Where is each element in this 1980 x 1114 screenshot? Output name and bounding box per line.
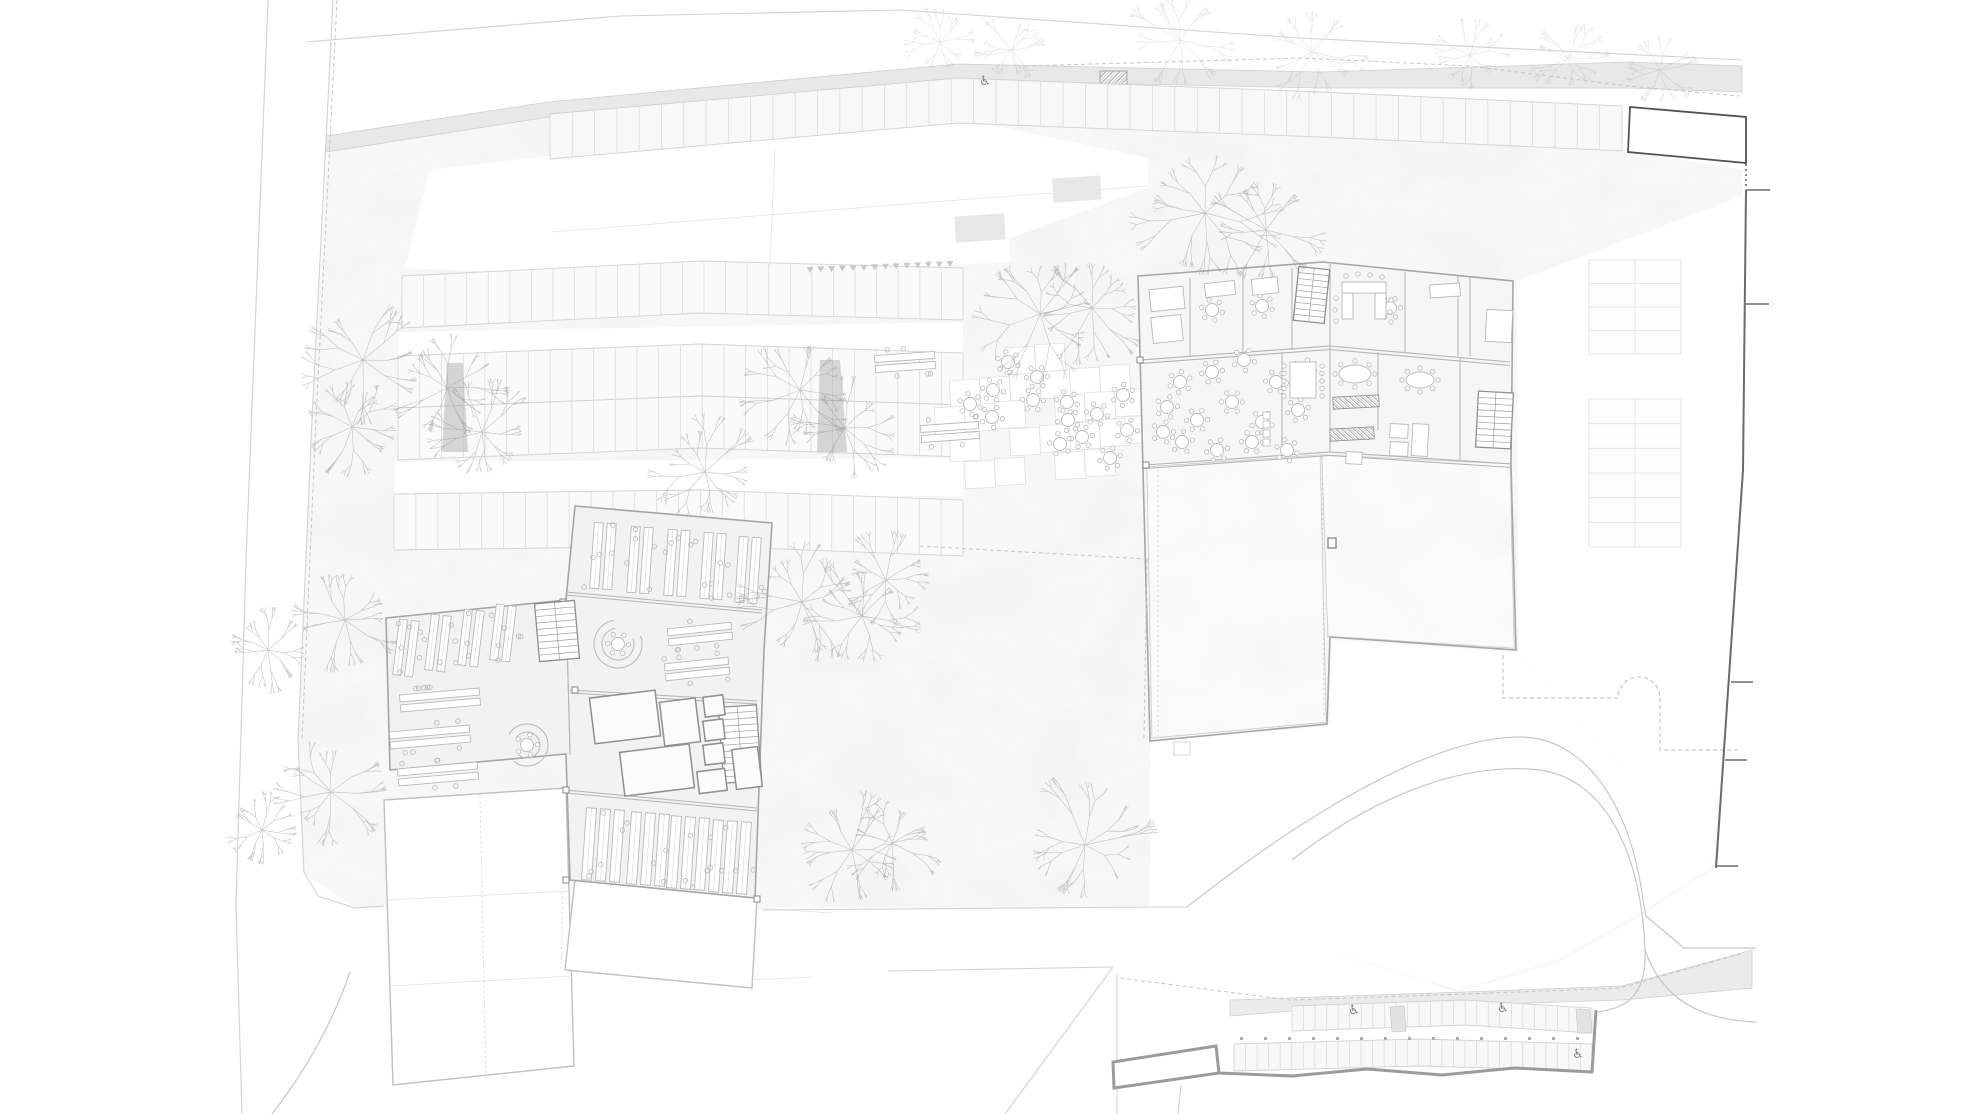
chair (1269, 370, 1273, 374)
chair (1225, 409, 1229, 413)
chair (1036, 407, 1040, 411)
chair (1025, 407, 1029, 411)
chair (1418, 390, 1422, 394)
post-dot (1504, 1037, 1507, 1040)
post-dot (1336, 1037, 1339, 1040)
table-top (1157, 426, 1170, 439)
chair (1199, 371, 1203, 375)
chair (1400, 378, 1404, 382)
chair (1115, 463, 1119, 467)
chair (1234, 350, 1238, 354)
wall-marker (563, 877, 569, 883)
chair (1168, 395, 1172, 399)
kitchen-box (1390, 424, 1409, 439)
chair (1075, 402, 1079, 406)
chair (1334, 296, 1338, 300)
fixture (1263, 421, 1270, 428)
animal-pen (589, 690, 660, 744)
chair (1127, 438, 1131, 442)
chair (1179, 369, 1183, 373)
chair (1205, 417, 1209, 421)
animal-pen (659, 698, 700, 746)
chair (1090, 433, 1094, 437)
fixture (1263, 412, 1270, 419)
table-top (1246, 436, 1259, 449)
table-top (1211, 444, 1224, 457)
side-table (1204, 280, 1235, 297)
chair (1084, 410, 1088, 414)
animal-pen (620, 744, 695, 796)
chair (958, 398, 962, 402)
animal-pen (703, 695, 725, 717)
chair (978, 405, 982, 409)
table-top (1027, 394, 1040, 407)
chair (1250, 300, 1254, 304)
post-dot (1288, 1037, 1291, 1040)
chair (1245, 431, 1249, 435)
oval-table (1333, 359, 1377, 389)
chair (1135, 429, 1139, 433)
chair (1225, 391, 1229, 395)
chair (1072, 392, 1076, 396)
chair (611, 632, 615, 636)
chair (1152, 424, 1156, 428)
chair (1001, 390, 1005, 394)
chair (1055, 420, 1059, 424)
table-top (1191, 414, 1204, 427)
chair (1064, 428, 1068, 432)
conference-top (1290, 362, 1316, 398)
table-top (987, 384, 1000, 397)
hall-wash (1147, 455, 1326, 738)
chair (1225, 446, 1229, 450)
chair (621, 651, 625, 655)
chair (1024, 375, 1028, 379)
chair (984, 396, 988, 400)
chair (1026, 388, 1030, 392)
chair (1170, 373, 1174, 377)
chair (1047, 441, 1051, 445)
post-dot (1456, 1037, 1459, 1040)
chair (1431, 386, 1435, 390)
chair (1250, 423, 1254, 427)
chair (1041, 384, 1045, 388)
chair (1320, 394, 1324, 398)
post-dot (1432, 1037, 1435, 1040)
chair (1105, 466, 1109, 470)
chair (1120, 403, 1124, 407)
chair (1235, 409, 1239, 413)
chair (1112, 387, 1116, 391)
chair (1389, 298, 1393, 302)
chair (1282, 386, 1286, 390)
chair (1268, 297, 1272, 301)
chair (995, 405, 999, 409)
chair (1173, 447, 1177, 451)
table-top (986, 411, 999, 424)
chair (1067, 437, 1071, 441)
oval-top (1406, 372, 1434, 388)
chair (1216, 378, 1220, 382)
chair (1367, 363, 1371, 367)
chair (1076, 445, 1080, 449)
chair (1100, 448, 1104, 452)
chair (1306, 405, 1310, 409)
chair (610, 651, 614, 655)
kitchen-box (1411, 424, 1429, 457)
chair (1190, 427, 1194, 431)
chair (1073, 427, 1077, 431)
chair (1287, 458, 1291, 462)
chair (622, 633, 626, 637)
chair (1037, 389, 1041, 393)
chair (1220, 368, 1224, 372)
table-top (1076, 431, 1089, 444)
chair (1263, 379, 1267, 383)
chair (1252, 360, 1256, 364)
chair (1405, 386, 1409, 390)
chair (1282, 364, 1286, 368)
chair (516, 737, 520, 741)
table-top (1061, 396, 1074, 409)
post-dot (1312, 1037, 1315, 1040)
outside-pad (1174, 742, 1190, 755)
table-top (1206, 304, 1219, 317)
oval-table (1400, 366, 1440, 394)
chair (1098, 422, 1102, 426)
table-segment (1342, 293, 1353, 319)
chair (1030, 384, 1034, 388)
chair (1353, 359, 1357, 363)
table-top (1174, 376, 1187, 389)
animal-pen (703, 743, 725, 765)
sofa (1485, 309, 1513, 342)
chair (1189, 409, 1193, 413)
chair (1181, 429, 1185, 433)
chair (1252, 311, 1256, 315)
barn-outline (384, 788, 574, 1085)
post-dot (1552, 1037, 1555, 1040)
grid-terrace (1589, 399, 1681, 547)
chair (1295, 451, 1299, 455)
chair (1204, 450, 1208, 454)
barn-building (384, 788, 574, 1085)
chair (528, 753, 532, 757)
chair (1061, 409, 1065, 413)
chair (1203, 315, 1207, 319)
fixture (1263, 439, 1270, 446)
chair (1116, 433, 1120, 437)
chair (1270, 307, 1274, 311)
chair (1232, 363, 1236, 367)
chair (1084, 425, 1088, 429)
chair (980, 386, 984, 390)
chair (996, 356, 1000, 360)
sofa (1151, 315, 1184, 344)
chair (1207, 298, 1211, 302)
terrace-tile (1009, 427, 1040, 456)
chair (1356, 272, 1360, 276)
chair (1152, 436, 1156, 440)
chair (1293, 418, 1297, 422)
chair (1214, 360, 1218, 364)
chair (1339, 381, 1343, 385)
chair (1200, 305, 1204, 309)
animal-pen (732, 747, 763, 790)
chair (1039, 365, 1043, 369)
chair (1045, 374, 1049, 378)
grid-terrace (1589, 260, 1681, 354)
table-top (964, 398, 977, 411)
hall-wash (1322, 455, 1514, 648)
chair (1041, 398, 1045, 402)
chair (1117, 421, 1121, 425)
chair (605, 641, 609, 645)
chair (1176, 390, 1180, 394)
chair (1262, 314, 1266, 318)
table-top (1121, 424, 1134, 437)
reserved-stall (1390, 1006, 1406, 1032)
chair (1171, 430, 1175, 434)
sofa (1149, 286, 1185, 311)
chair (1239, 439, 1243, 443)
chair (1268, 388, 1272, 392)
wall-marker (572, 687, 578, 693)
chair (987, 378, 991, 382)
chair (1282, 379, 1286, 383)
chair (1188, 376, 1192, 380)
chair (1091, 402, 1095, 406)
post-dot (1528, 1037, 1531, 1040)
chair (1066, 449, 1070, 453)
post-dot (1360, 1037, 1363, 1040)
chair (1334, 319, 1338, 323)
table-top (1256, 300, 1269, 313)
plaza-pad (1052, 175, 1102, 202)
table-top (1281, 444, 1294, 457)
chair (1398, 306, 1402, 310)
table-top (1206, 366, 1219, 379)
chair (1029, 366, 1033, 370)
table-top (1238, 354, 1251, 367)
chair (1164, 420, 1168, 424)
chair (1000, 417, 1004, 421)
chair (1118, 453, 1122, 457)
kitchen-counter (1333, 395, 1380, 409)
chair (1130, 388, 1134, 392)
chair (1221, 456, 1225, 460)
chair (1170, 435, 1174, 439)
chair (1293, 441, 1297, 445)
chair (1190, 438, 1194, 442)
side-table (1430, 283, 1461, 298)
table-segment (1342, 282, 1386, 293)
chair (1320, 379, 1324, 383)
chair (1111, 446, 1115, 450)
reserved-stall (1576, 1009, 1592, 1033)
chair (1286, 410, 1290, 414)
chair (1004, 349, 1008, 353)
terrace-tile (964, 460, 995, 489)
chair (1220, 310, 1224, 314)
chair (1156, 399, 1160, 403)
south-parking-lower-outline (1234, 1039, 1592, 1071)
side-table (1251, 277, 1279, 296)
wall-marker (563, 787, 569, 793)
chair (1255, 431, 1259, 435)
terrace-tile (1034, 343, 1065, 372)
annex-outline (565, 880, 757, 988)
chair (1380, 275, 1384, 279)
chair (1208, 440, 1212, 444)
chair (535, 742, 539, 746)
chair (1247, 348, 1251, 352)
site-plan-page: ♿♿♿♿ (0, 0, 1980, 1114)
chair (1219, 400, 1223, 404)
kitchen-counter (1330, 427, 1375, 441)
chair (1240, 400, 1244, 404)
chair (1303, 415, 1307, 419)
accessible-parking-icon: ♿ (979, 74, 991, 89)
chair (1203, 362, 1207, 366)
chair (1200, 408, 1204, 412)
south-parking-lower (1234, 1039, 1592, 1071)
chair (1054, 451, 1058, 455)
chair (966, 392, 970, 396)
chair (1086, 443, 1090, 447)
chair (1218, 438, 1222, 442)
chair (1388, 310, 1392, 314)
chair (997, 380, 1001, 384)
chair (1056, 432, 1060, 436)
kitchen-box (1390, 442, 1409, 457)
chair (1129, 418, 1133, 422)
terrace-tile (994, 400, 1025, 429)
fixture (1263, 430, 1270, 437)
chair (1368, 273, 1372, 277)
table-top (1226, 396, 1239, 409)
chair (991, 425, 995, 429)
chair (982, 407, 986, 411)
post-dot (1240, 1037, 1243, 1040)
table-segment (1375, 293, 1386, 319)
chair (1185, 449, 1189, 453)
chair (994, 398, 998, 402)
chair (970, 412, 974, 416)
chair (1217, 300, 1221, 304)
table-top (1054, 438, 1067, 451)
chair (1333, 308, 1337, 312)
chair (1102, 404, 1106, 408)
chair (1288, 400, 1292, 404)
chair (1333, 372, 1337, 376)
chair (1418, 366, 1422, 370)
accessible-parking-icon: ♿ (1497, 1001, 1509, 1016)
chair (1320, 386, 1324, 390)
post-dot (1408, 1037, 1411, 1040)
chair (1105, 414, 1109, 418)
animal-pen (703, 719, 725, 741)
staircase (1476, 391, 1514, 449)
table-top (1292, 404, 1305, 417)
chair (1130, 398, 1134, 402)
chair (1186, 386, 1190, 390)
accessible-parking-icon: ♿ (1348, 1003, 1360, 1018)
chair (1393, 315, 1397, 319)
chair (1213, 318, 1217, 322)
terrace-tile (994, 457, 1025, 486)
chair (1206, 380, 1210, 384)
chair (528, 733, 532, 737)
chair (1200, 427, 1204, 431)
chair (1277, 455, 1281, 459)
chair (1353, 385, 1357, 389)
chair (517, 749, 521, 753)
animal-pen (697, 768, 727, 793)
chair (1055, 398, 1059, 402)
chair (980, 420, 984, 424)
accessible-parking-icon: ♿ (1572, 1047, 1584, 1062)
table-top (1091, 408, 1104, 421)
table-top (1062, 414, 1075, 427)
table-top (1104, 452, 1117, 465)
chair (976, 395, 980, 399)
chair (1253, 412, 1257, 416)
chair (1373, 372, 1377, 376)
table-top (1176, 436, 1189, 449)
chair (1111, 398, 1115, 402)
chair (1339, 363, 1343, 367)
terrace-tile (1054, 451, 1085, 480)
chair (1062, 390, 1066, 394)
chair (1168, 415, 1172, 419)
chair (1320, 364, 1324, 368)
chair (1211, 458, 1215, 462)
table-top (1161, 401, 1174, 414)
chair (1020, 397, 1024, 401)
chair (1436, 378, 1440, 382)
chair (960, 409, 964, 413)
chair (1243, 368, 1247, 372)
post-dot (1384, 1037, 1387, 1040)
chair (1320, 371, 1324, 375)
chair (1275, 445, 1279, 449)
chair (1255, 449, 1259, 453)
table-top (612, 638, 625, 651)
post-dot (1264, 1037, 1267, 1040)
table-top (1117, 389, 1130, 402)
table-top (1270, 376, 1283, 389)
chair (1184, 418, 1188, 422)
plaza-pad (954, 213, 1006, 242)
chair (1235, 391, 1239, 395)
chair (1282, 438, 1286, 442)
chair (1282, 371, 1286, 375)
chair (1431, 369, 1435, 373)
chair (1157, 411, 1161, 415)
wall-marker (1143, 462, 1149, 468)
table-top (521, 739, 534, 752)
chair (1344, 274, 1348, 278)
post-dot (1480, 1037, 1483, 1040)
chair (1073, 410, 1077, 414)
chair (1164, 440, 1168, 444)
wall-marker (754, 896, 760, 902)
staircase (1293, 267, 1329, 324)
chair (1098, 458, 1102, 462)
chair (1367, 381, 1371, 385)
chair (1168, 384, 1172, 388)
